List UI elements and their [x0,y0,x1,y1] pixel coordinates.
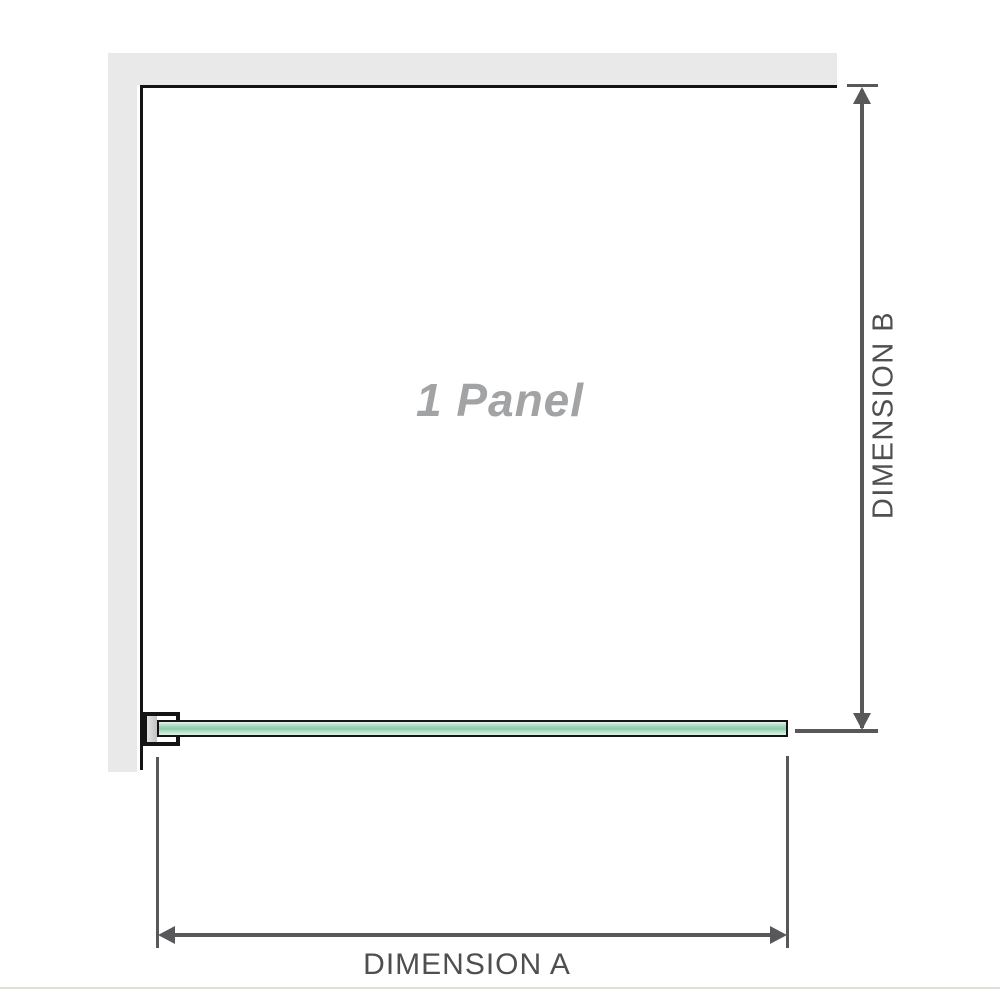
dimension-a-arrow-line [165,933,779,937]
wall-left-segment [108,53,137,772]
wall-top-segment [108,53,837,85]
arrow-right-icon [770,926,787,944]
dimension-b-label: DIMENSION B [868,311,901,519]
glass-panel-bar [157,720,788,737]
dimension-a-label: DIMENSION A [363,948,571,982]
arrow-up-icon [853,87,871,104]
dimension-b-arrow-line [860,90,864,728]
dimension-a-right-extension-line [786,756,789,948]
bracket-pad [147,716,157,742]
panel-dimension-diagram: 1 Panel DIMENSION B DIMENSION A [0,0,1000,1000]
arrow-down-icon [853,713,871,730]
panel-count-watermark: 1 Panel [416,373,584,427]
dimension-a-left-extension-line [156,757,159,948]
enclosure-left-line [140,85,143,770]
arrow-left-icon [158,926,175,944]
bottom-divider-line [0,987,1000,989]
enclosure-top-line [140,85,837,88]
